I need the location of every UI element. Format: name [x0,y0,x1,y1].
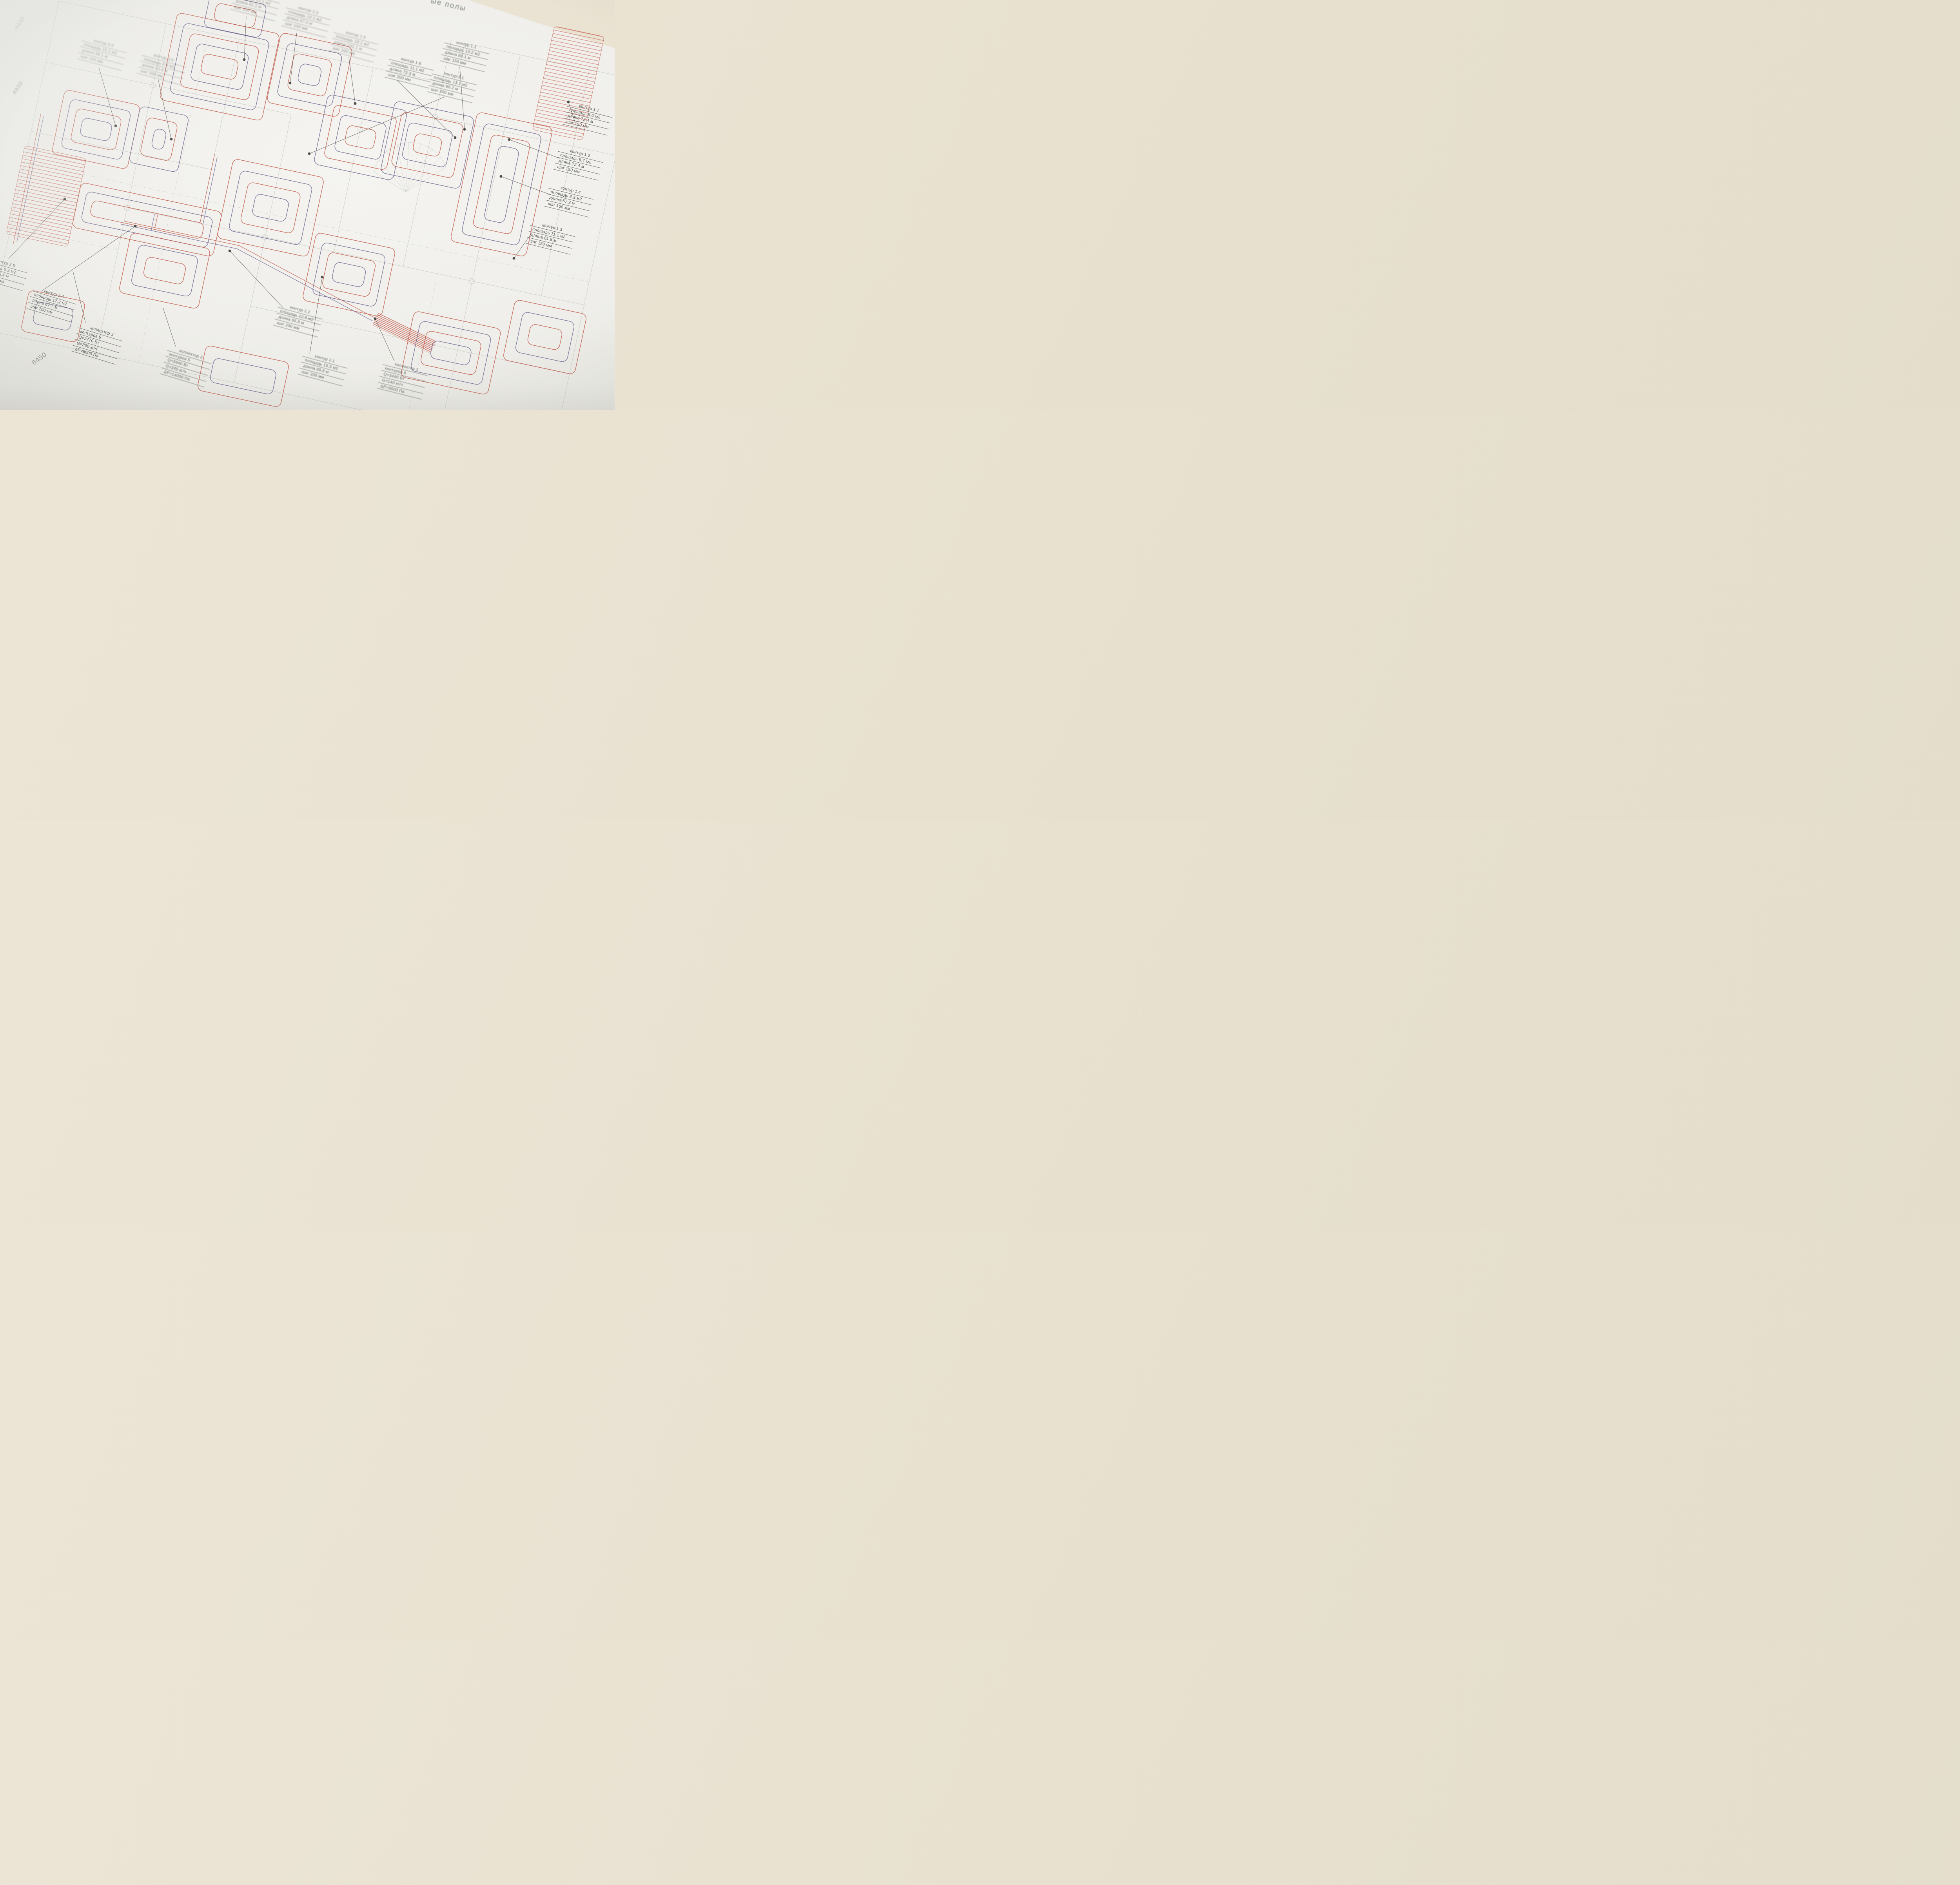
leader-dot [64,198,66,201]
leader-dot [354,102,357,105]
leader-dot [308,152,311,155]
heating-coil-ring [297,63,322,87]
leader-dot [463,128,466,131]
heating-coil-ring [118,232,211,309]
leader-line [163,308,176,347]
heating-coil-ring [151,128,167,150]
heating-coil-ring [420,330,482,376]
heating-coil-ring [228,170,313,245]
heating-coil-ring [313,94,407,181]
coil-strip-left-room [6,145,86,247]
leader-dot [114,125,117,127]
heating-coil-ring [312,242,386,307]
heating-coil-ring [129,106,189,172]
heating-coil-ring [515,311,575,363]
leader-dot [374,317,377,320]
heating-coil-ring [380,101,475,189]
leader-line [501,176,551,195]
heating-coil-ring [391,111,464,178]
leader-dot [289,82,292,85]
heating-coil-ring [190,43,249,91]
leader-dot [170,138,173,141]
heating-coil-ring [80,117,113,142]
heating-coil-ring [321,252,376,298]
heating-coil-ring [401,122,453,168]
leader-line [158,80,171,139]
heating-coil-ring [61,99,131,160]
heating-coil-ring [324,104,397,171]
heating-coil-ring [287,53,332,97]
leader-dot [454,136,457,139]
heating-coil-ring [527,323,563,350]
leader-dot [513,257,515,260]
heating-coil-ring [209,357,277,395]
leader-line [509,140,560,158]
photo-of-heating-plan: { "header": { "title_fragment": "ые полы… [0,0,615,410]
heating-coil-ring [143,256,187,285]
heating-coil-ring [503,299,587,375]
collector-manifold-bundle [372,312,436,354]
leader-dot [508,138,511,141]
heating-coil-ring [277,43,343,107]
leader-dot [321,276,324,279]
heating-coil-ring [484,145,520,223]
heating-coil-ring [430,340,472,366]
heating-coil-ring [180,33,260,101]
heating-coil-ring [70,108,122,151]
leader-dot [500,175,503,178]
heating-coil-ring [240,182,301,234]
leader-dot [243,58,246,61]
leader-line [99,67,116,126]
heating-coil-ring [89,200,204,239]
leader-line [290,33,297,83]
heating-coil-ring [331,261,367,288]
leader-line [73,271,85,323]
leader-dot [134,225,137,228]
leader-dot [229,250,231,252]
heating-coil-ring [334,114,387,160]
leader-line [349,57,355,103]
heating-coil-ring [252,193,290,222]
